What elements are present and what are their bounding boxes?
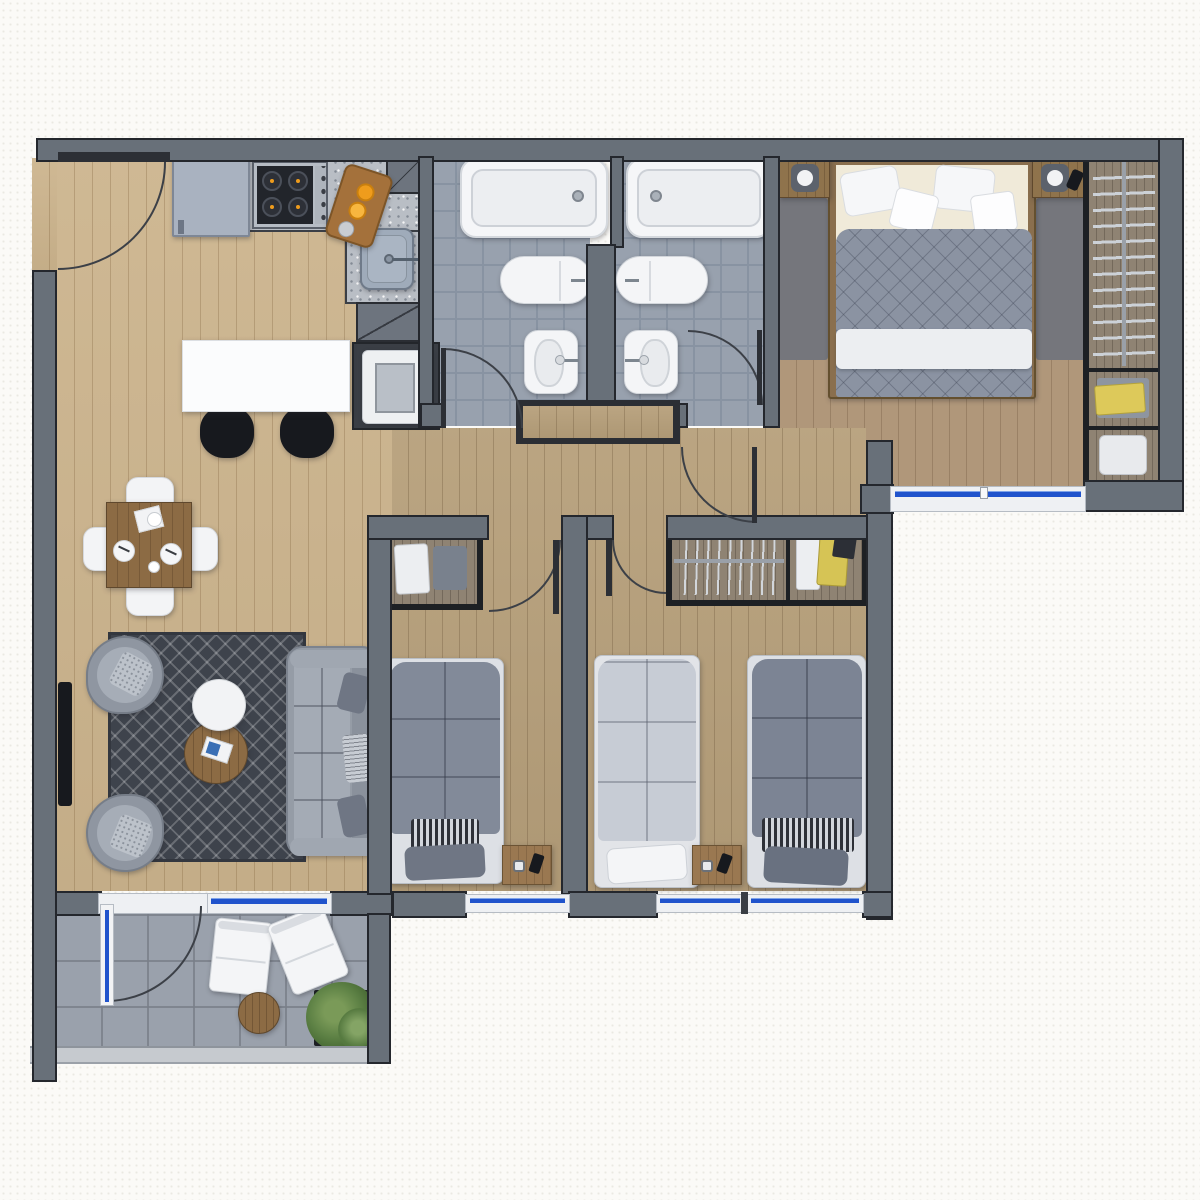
cooktop <box>252 161 328 229</box>
pillow <box>404 843 486 881</box>
phone <box>528 853 544 874</box>
balcony-window-glass <box>211 899 327 904</box>
master-closet-hanger-section <box>1089 158 1159 368</box>
closet-rail <box>674 559 784 563</box>
folded-clothes-gray <box>433 546 467 590</box>
bathtub <box>460 158 608 238</box>
bedroom-2-window-glass <box>470 899 565 903</box>
round-side-table <box>192 679 246 731</box>
wall-master-window-pier <box>860 484 894 514</box>
master-window-mullion <box>980 487 988 499</box>
phone <box>716 853 733 875</box>
desk <box>692 845 742 885</box>
cup <box>148 561 160 573</box>
bedroom-3-window-b <box>746 894 864 913</box>
bedside-rug <box>778 198 828 360</box>
orange-slice <box>354 181 377 204</box>
vanity-faucet <box>625 279 639 282</box>
balcony-railing <box>30 1046 390 1064</box>
small-bowl <box>336 219 356 239</box>
wall-bedrooms-bottom-a <box>392 891 467 918</box>
wall-right <box>1158 138 1184 490</box>
wall-left <box>32 270 57 1082</box>
bar-stool <box>280 406 334 458</box>
wall-bedrooms-bottom-b <box>568 891 658 918</box>
desk-knob <box>701 860 713 872</box>
refrigerator-handle <box>178 220 184 234</box>
wall-bathroom2-right <box>763 156 780 428</box>
burner-dot <box>296 205 300 209</box>
window-pier-tick <box>741 892 748 914</box>
cooktop-knobs <box>315 166 326 224</box>
chair-fold-line <box>216 956 266 963</box>
armchair <box>86 636 164 714</box>
wall-bedrooms-bottom-c <box>862 891 893 918</box>
chair-fold-line <box>285 943 334 964</box>
single-bed <box>594 655 700 888</box>
pillow <box>606 843 688 884</box>
sofa-armrest <box>290 650 376 668</box>
place-setting <box>160 543 182 565</box>
wall-balcony-right <box>367 913 391 1064</box>
hall-niche-floor <box>523 406 673 438</box>
bedroom-3-window-b-glass <box>751 899 859 903</box>
single-bed <box>386 658 504 884</box>
master-bedroom-window <box>890 486 1086 512</box>
cup <box>147 512 162 527</box>
bedroom-3-window-a <box>656 894 744 913</box>
bathroom-2-door-leaf <box>757 330 762 405</box>
duvet-fold <box>836 329 1032 369</box>
bedroom-2-window <box>465 894 570 913</box>
bedside-rug <box>1036 198 1086 360</box>
vanity-divider-line <box>649 261 651 301</box>
wall-hall-c <box>666 515 868 540</box>
burner-dot <box>270 205 274 209</box>
balcony-door-glass <box>105 910 109 1002</box>
entry-threshold-floor <box>32 158 59 272</box>
double-bed <box>828 155 1036 399</box>
island-counter <box>182 340 350 412</box>
wall-living-bottom-a <box>55 891 102 916</box>
entry-door-leaf <box>58 152 170 162</box>
chair-backrest-bar <box>218 920 271 933</box>
bathtub <box>626 158 772 238</box>
washer-door <box>375 363 415 413</box>
desk-knob <box>513 860 525 872</box>
balcony-door-leaf <box>100 904 114 1006</box>
toilet-faucet-knob <box>555 355 565 365</box>
bathtub-drain <box>650 190 662 202</box>
lower-cabinet <box>356 302 424 342</box>
duvet <box>836 229 1032 397</box>
burner-dot <box>270 179 274 183</box>
master-closet-shelf-towels <box>1089 430 1159 480</box>
vanity-faucet <box>571 279 585 282</box>
wall-closet-bottom <box>1083 480 1184 512</box>
tv <box>58 682 72 806</box>
duvet <box>598 659 696 841</box>
master-window-glass <box>895 492 1081 497</box>
pillow <box>763 846 849 886</box>
vanity-basin <box>616 256 708 304</box>
lounge-chair <box>208 917 273 997</box>
duvet <box>752 659 862 837</box>
closet-rail <box>1122 160 1126 366</box>
wall-bedroom2-left <box>367 515 392 895</box>
folded-clothes-yellow <box>1094 382 1146 415</box>
sink-faucet <box>392 258 418 261</box>
wall-hall-a <box>367 515 489 540</box>
lamp-shade <box>797 170 813 186</box>
toilet-faucet-knob <box>639 355 649 365</box>
toilet-faucet <box>563 359 579 362</box>
wall-bedroom-divider <box>561 515 588 895</box>
sofa-armrest <box>290 838 376 856</box>
wall-bathroom1-left <box>418 156 434 428</box>
burner-dot <box>296 179 300 183</box>
balcony-table <box>238 992 280 1034</box>
apartment-floor-plan <box>0 0 1200 1200</box>
upper-cabinet <box>386 158 422 194</box>
sofa <box>286 646 378 856</box>
lamp-shade <box>1047 170 1063 186</box>
orange-slice <box>346 199 369 222</box>
bedroom-2-door-leaf <box>553 540 559 614</box>
vanity-divider-line <box>559 261 561 301</box>
folded-clothes-white <box>394 543 431 595</box>
wardrobe-interior <box>387 536 477 604</box>
bar-stool <box>200 406 254 458</box>
duvet <box>390 662 500 834</box>
vanity-basin <box>500 256 592 304</box>
floor-plan-page: { "palette": { "wall_fill": "#687079", "… <box>0 0 1200 1200</box>
armchair <box>86 794 164 872</box>
bathtub-drain <box>572 190 584 202</box>
toilet <box>624 330 678 394</box>
place-setting <box>113 540 135 562</box>
folded-towels <box>1099 435 1147 475</box>
bedroom-3-door-leaf <box>606 540 612 596</box>
wall-bath-divider-upper <box>610 156 624 248</box>
single-bed <box>747 655 866 888</box>
bathroom-1-door-leaf <box>441 348 446 428</box>
bedroom-3-window-a-glass <box>660 899 740 903</box>
magazine-cover <box>206 741 221 756</box>
refrigerator <box>172 156 250 237</box>
master-closet-shelf-clothes <box>1089 372 1159 426</box>
desk <box>502 845 552 885</box>
master-door-leaf <box>752 447 757 523</box>
toilet <box>524 330 578 394</box>
